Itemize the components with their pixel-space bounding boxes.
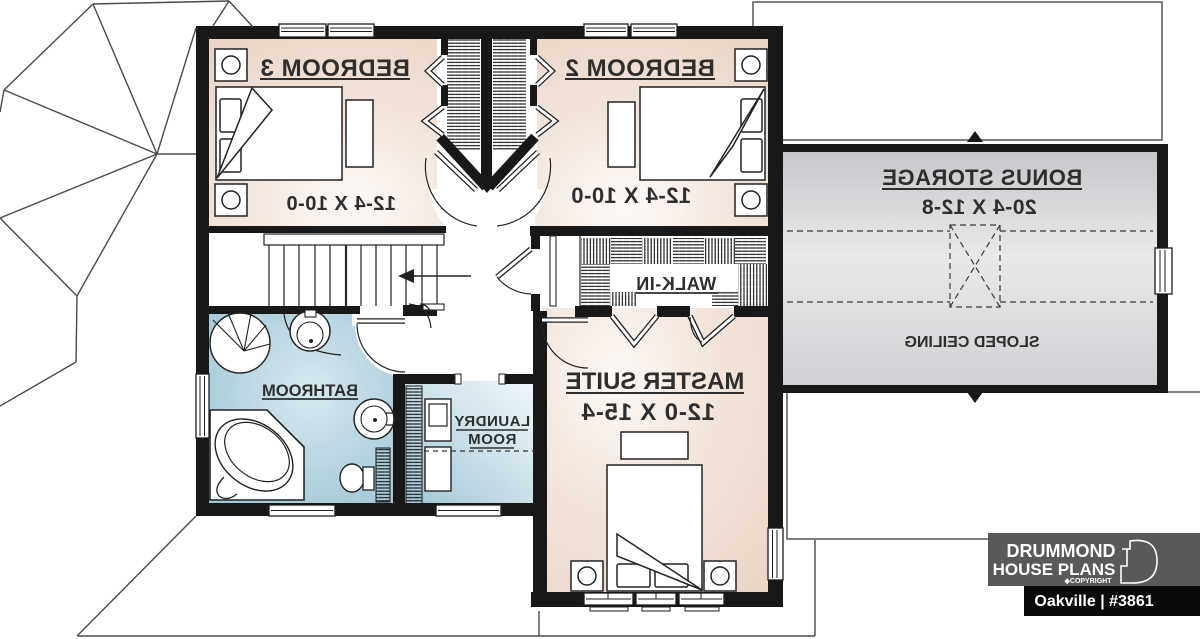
svg-text:SLOPED CEILING: SLOPED CEILING [904,334,1039,351]
svg-text:Oakville | #3861: Oakville | #3861 [1034,593,1153,610]
svg-text:BEDROOM 3: BEDROOM 3 [260,55,410,82]
svg-text:◆COPYRIGHT: ◆COPYRIGHT [1064,578,1113,585]
svg-text:12-4 X 10-0: 12-4 X 10-0 [571,183,691,208]
svg-text:BATHROOM: BATHROOM [262,382,358,400]
svg-text:BONUS STORAGE: BONUS STORAGE [882,165,1082,190]
svg-text:MASTER SUITE: MASTER SUITE [566,368,745,395]
svg-text:DRUMMOND: DRUMMOND [1007,541,1116,561]
svg-text:BEDROOM 2: BEDROOM 2 [565,55,715,82]
svg-text:20-4 X 12-8: 20-4 X 12-8 [921,196,1036,219]
svg-text:12-4 X 10-0: 12-4 X 10-0 [286,193,396,215]
svg-text:LAUNDRY: LAUNDRY [454,413,530,430]
svg-text:HOUSE PLANS: HOUSE PLANS [993,560,1116,579]
svg-text:ROOM: ROOM [468,431,517,448]
svg-text:WALK-IN: WALK-IN [636,274,716,294]
svg-text:12-0 X 15-4: 12-0 X 15-4 [581,399,715,426]
